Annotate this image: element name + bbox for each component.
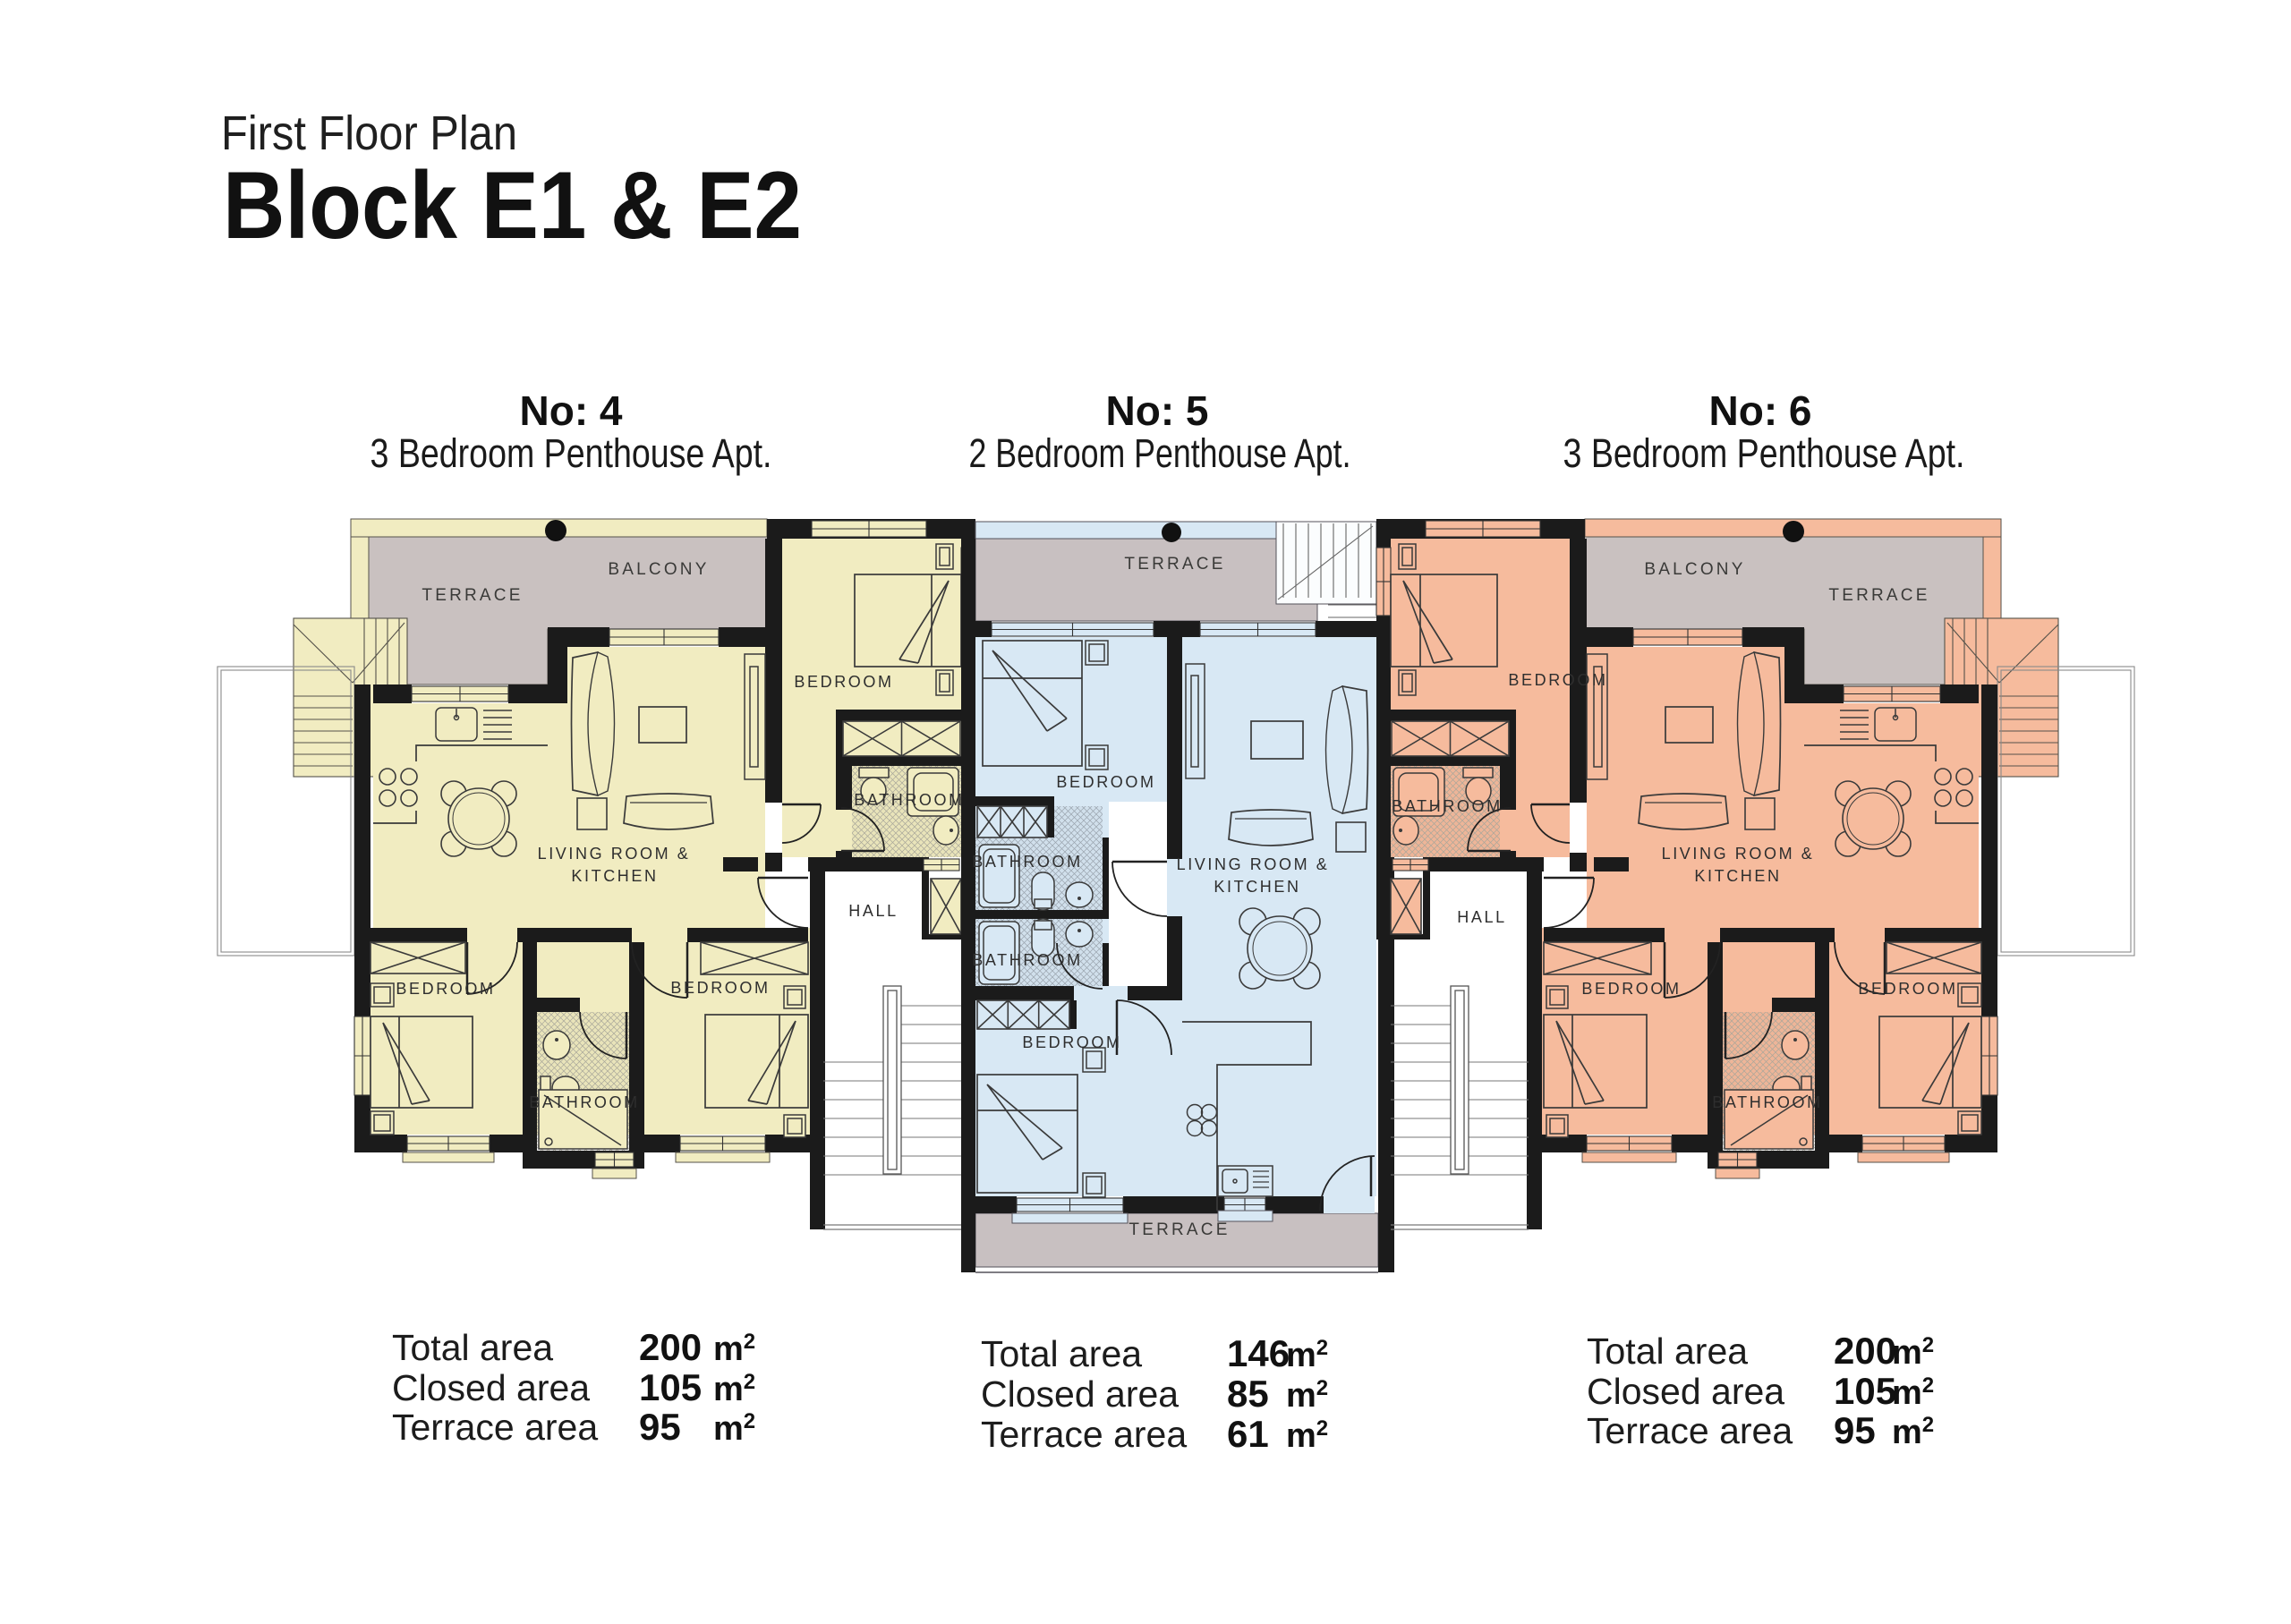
svg-text:TERRACE: TERRACE xyxy=(422,586,523,605)
svg-text:Total area: Total area xyxy=(392,1327,553,1368)
svg-text:Total area: Total area xyxy=(981,1333,1142,1374)
svg-text:TERRACE: TERRACE xyxy=(1828,586,1929,605)
svg-text:BEDROOM: BEDROOM xyxy=(670,979,770,997)
svg-text:BEDROOM: BEDROOM xyxy=(1858,980,1957,998)
svg-text:Terrace area: Terrace area xyxy=(1587,1410,1793,1451)
svg-text:No: 6: No: 6 xyxy=(1709,387,1812,434)
svg-text:95: 95 xyxy=(1834,1409,1876,1451)
svg-text:200: 200 xyxy=(639,1326,702,1368)
svg-text:LIVING ROOM &: LIVING ROOM & xyxy=(1177,855,1330,873)
svg-text:105: 105 xyxy=(1834,1370,1896,1412)
svg-text:Total area: Total area xyxy=(1587,1331,1748,1372)
svg-text:Terrace area: Terrace area xyxy=(392,1407,598,1448)
svg-text:TERRACE: TERRACE xyxy=(1128,1220,1230,1239)
svg-text:BATHROOM: BATHROOM xyxy=(1392,797,1502,815)
svg-text:KITCHEN: KITCHEN xyxy=(1694,867,1781,885)
svg-text:HALL: HALL xyxy=(848,902,898,920)
svg-text:61: 61 xyxy=(1227,1413,1269,1455)
svg-text:Block E1 & E2: Block E1 & E2 xyxy=(223,151,802,259)
svg-text:BEDROOM: BEDROOM xyxy=(1581,980,1681,998)
svg-text:No: 4: No: 4 xyxy=(520,387,623,434)
svg-text:KITCHEN: KITCHEN xyxy=(571,867,658,885)
svg-text:Closed area: Closed area xyxy=(392,1367,590,1408)
svg-text:LIVING ROOM &: LIVING ROOM & xyxy=(1662,845,1815,863)
svg-text:Terrace area: Terrace area xyxy=(981,1414,1187,1455)
svg-text:Closed area: Closed area xyxy=(1587,1371,1784,1412)
svg-text:TERRACE: TERRACE xyxy=(1124,555,1225,574)
svg-text:BEDROOM: BEDROOM xyxy=(1022,1033,1121,1051)
svg-text:105: 105 xyxy=(639,1366,702,1408)
svg-text:BEDROOM: BEDROOM xyxy=(1056,773,1155,791)
svg-text:BATHROOM: BATHROOM xyxy=(1712,1093,1822,1111)
svg-text:LIVING ROOM &: LIVING ROOM & xyxy=(538,845,691,863)
svg-text:BALCONY: BALCONY xyxy=(1644,560,1745,579)
svg-text:KITCHEN: KITCHEN xyxy=(1214,878,1300,896)
svg-text:146: 146 xyxy=(1227,1332,1290,1374)
svg-text:BEDROOM: BEDROOM xyxy=(396,980,495,998)
svg-text:3 Bedroom Penthouse Apt.: 3 Bedroom Penthouse Apt. xyxy=(1563,430,1965,476)
svg-text:BATHROOM: BATHROOM xyxy=(529,1093,639,1111)
svg-text:3 Bedroom Penthouse Apt.: 3 Bedroom Penthouse Apt. xyxy=(370,430,772,476)
svg-text:95: 95 xyxy=(639,1406,681,1448)
svg-text:BATHROOM: BATHROOM xyxy=(972,853,1082,871)
svg-text:Closed area: Closed area xyxy=(981,1373,1179,1415)
svg-text:BATHROOM: BATHROOM xyxy=(854,791,964,809)
svg-text:No: 5: No: 5 xyxy=(1106,387,1209,434)
svg-text:85: 85 xyxy=(1227,1373,1269,1415)
svg-text:200: 200 xyxy=(1834,1330,1896,1372)
svg-text:BEDROOM: BEDROOM xyxy=(794,673,893,691)
svg-text:2 Bedroom Penthouse Apt.: 2 Bedroom Penthouse Apt. xyxy=(969,430,1351,476)
svg-text:HALL: HALL xyxy=(1457,908,1506,926)
svg-text:BATHROOM: BATHROOM xyxy=(972,951,1082,969)
svg-text:BEDROOM: BEDROOM xyxy=(1508,671,1607,689)
svg-text:BALCONY: BALCONY xyxy=(608,560,709,579)
